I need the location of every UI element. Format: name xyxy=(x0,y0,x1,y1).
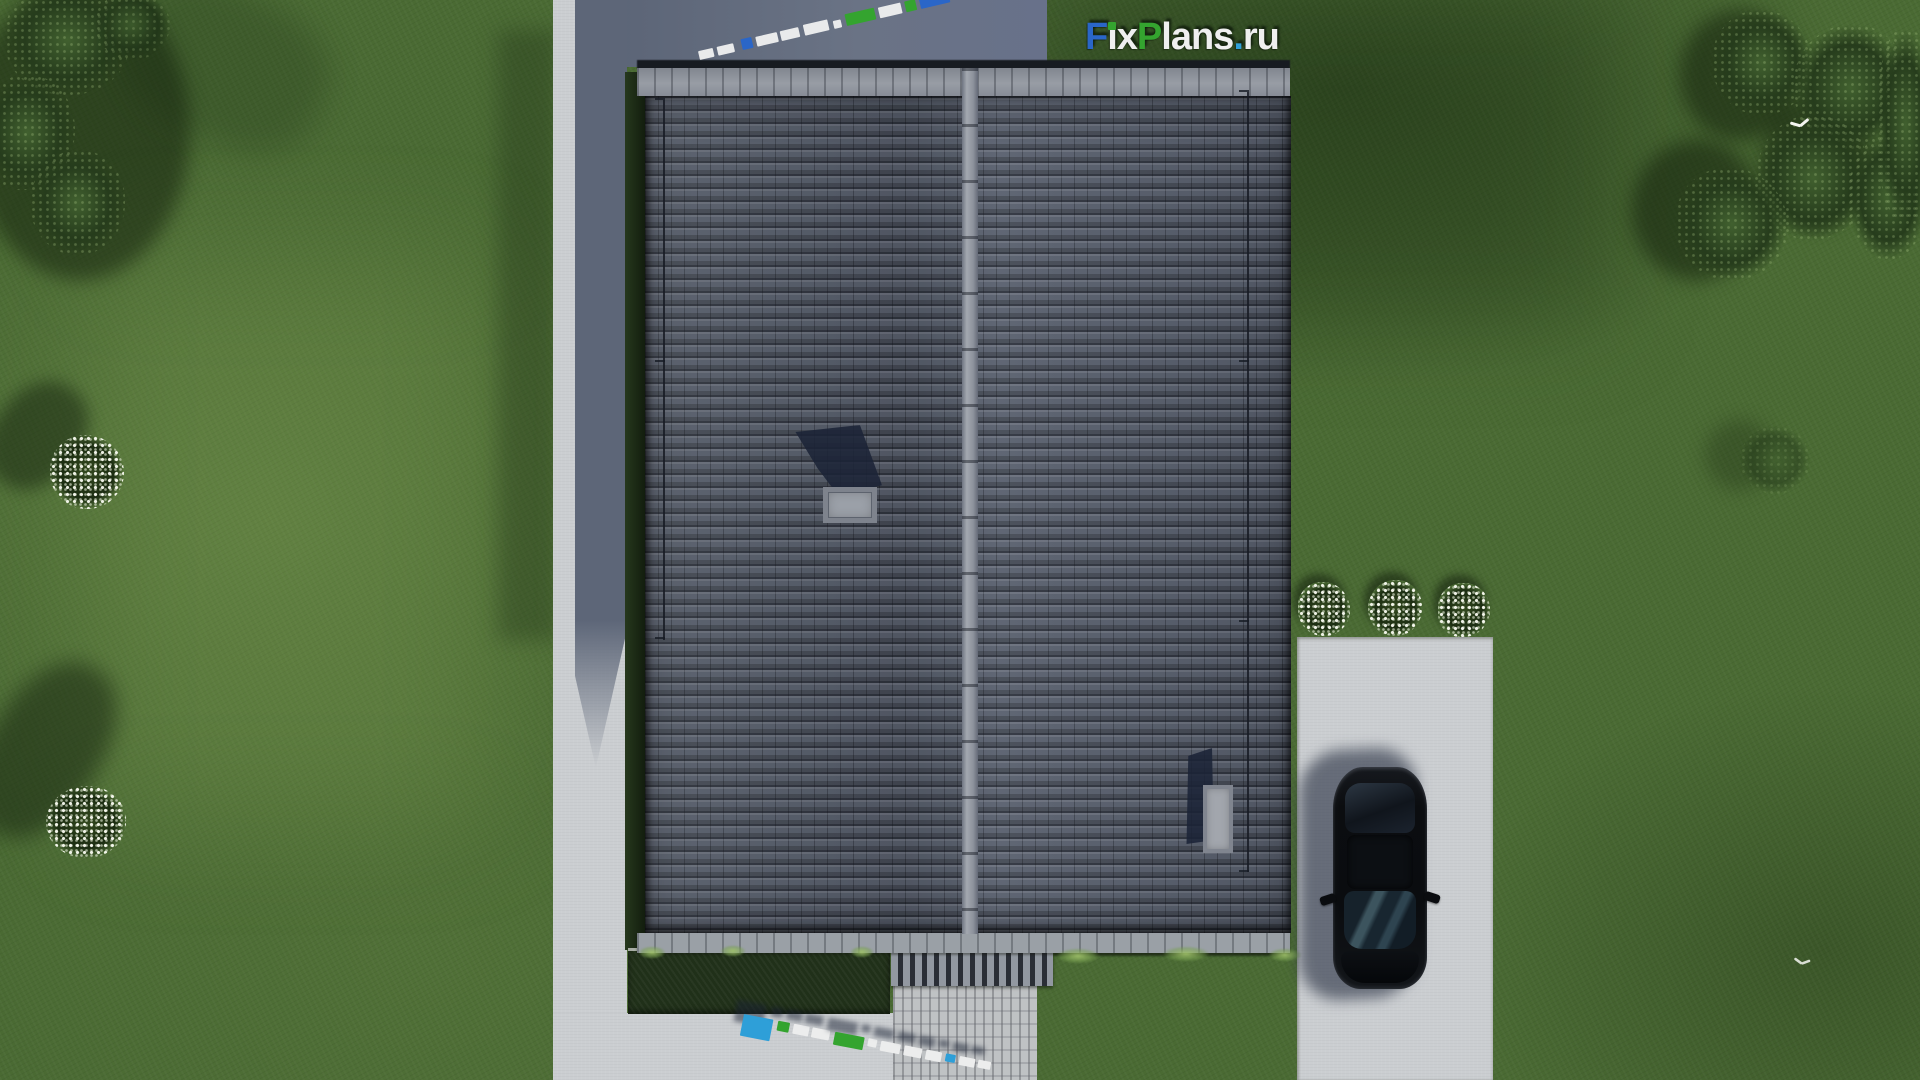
car xyxy=(1333,767,1427,989)
fixplans-logo: FıxPlans.ru xyxy=(1085,18,1279,56)
logo-letter: ı xyxy=(1107,18,1117,56)
logo-letter: x xyxy=(1117,18,1137,56)
hedge-south xyxy=(628,948,890,1014)
house-roof xyxy=(637,60,1290,953)
snow-guard-hook xyxy=(655,360,665,362)
snow-guard-left xyxy=(663,100,665,640)
watermark-block xyxy=(811,1027,831,1040)
wall-plant xyxy=(850,946,874,958)
tree-canopy xyxy=(1676,168,1788,280)
watermark-block xyxy=(925,1049,943,1062)
snow-guard-hook xyxy=(1239,90,1249,92)
wall-plant xyxy=(1268,948,1302,962)
snow-guard-hook xyxy=(655,637,665,639)
snow-guard-hook xyxy=(1239,360,1249,362)
path-west xyxy=(553,0,627,1016)
aerial-render-scene: FıxPlans.ru xyxy=(0,0,1920,1080)
tree-canopy xyxy=(30,150,125,255)
chimney-vent-right xyxy=(1203,785,1233,853)
house-shadow-on-lawn xyxy=(498,30,558,640)
wall-plant xyxy=(1056,948,1100,964)
watermark-block xyxy=(977,1060,991,1070)
bird-icon xyxy=(1793,956,1811,968)
roof-ridge xyxy=(962,68,978,934)
tree-canopy xyxy=(1878,30,1920,220)
tree-canopy xyxy=(1740,426,1810,494)
logo-letter: lans xyxy=(1161,18,1233,56)
logo-letter: P xyxy=(1137,18,1161,56)
watermark-block xyxy=(792,1024,810,1037)
logo-i-dot xyxy=(1108,22,1116,30)
lawn-light-patch-left xyxy=(90,260,490,820)
wall-plant xyxy=(720,945,746,957)
flower-bush xyxy=(1298,582,1350,636)
car-hood xyxy=(1341,951,1419,983)
path-west-shadow xyxy=(575,0,627,768)
logo-letter: F xyxy=(1085,18,1107,56)
car-rear-window xyxy=(1345,783,1415,833)
snow-guard-hook xyxy=(1239,870,1249,872)
watermark-block xyxy=(740,1014,774,1041)
watermark-block xyxy=(903,1045,923,1058)
snow-guard-hook xyxy=(1239,620,1249,622)
watermark-block xyxy=(867,1038,877,1048)
watermark-block xyxy=(945,1053,956,1063)
watermark-block xyxy=(776,1021,790,1033)
wall-plant xyxy=(638,946,666,959)
snow-guard-hook xyxy=(655,98,665,100)
logo-letter: . xyxy=(1233,18,1243,56)
flower-bush xyxy=(1438,583,1490,637)
wall-plant xyxy=(1162,946,1210,962)
flower-bush-left xyxy=(50,435,124,509)
watermark-block xyxy=(958,1056,975,1068)
flower-bush-left xyxy=(46,786,126,858)
car-windshield xyxy=(1344,891,1416,949)
chimney-cap-left xyxy=(823,487,877,523)
flower-bush xyxy=(1368,580,1422,636)
car-roof xyxy=(1347,835,1413,889)
logo-letter: ru xyxy=(1243,18,1279,56)
roof-left-half-tint xyxy=(645,96,962,933)
snow-guard-right xyxy=(1247,92,1249,872)
